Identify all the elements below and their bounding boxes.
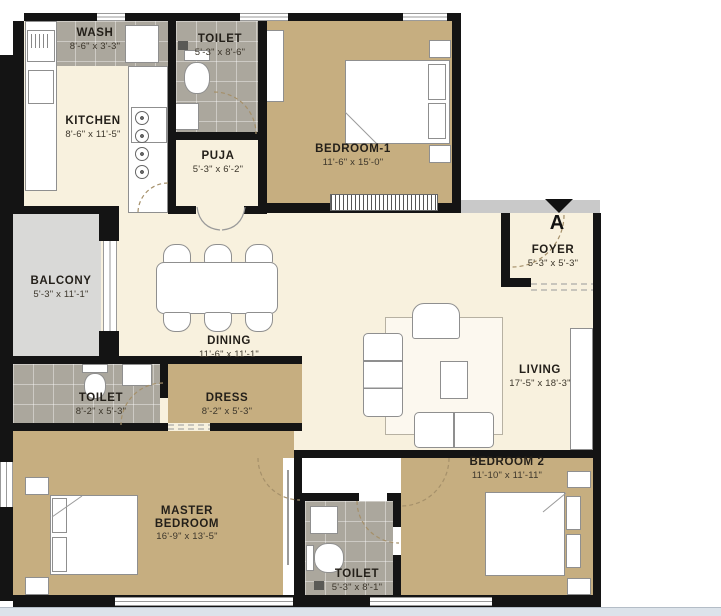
room-name: BALCONY xyxy=(30,275,91,288)
dining-chair xyxy=(163,244,191,264)
room-dims: 5'-3" x 8'-1" xyxy=(332,582,382,593)
bottom-edge-strip xyxy=(0,607,721,616)
room-dims: 11'-10" x 11'-11" xyxy=(469,470,544,481)
floor-plan: A WASH 8'-6" x 3'-3" TOILET 5'-3" x 8'-6… xyxy=(0,0,721,616)
toilet1-sink-icon xyxy=(172,103,199,130)
washing-machine-drum xyxy=(31,34,51,48)
room-label-dining: DINING 11'-6" x 11'-1" xyxy=(199,335,259,360)
room-name: PUJA xyxy=(193,150,243,163)
exhaust-fan-icon xyxy=(314,581,324,590)
burner-icon xyxy=(135,129,149,143)
stove-icon xyxy=(131,107,167,143)
bedroom1-pillow xyxy=(428,64,446,100)
burner-icon xyxy=(135,165,149,179)
room-label-balcony: BALCONY 5'-3" x 11'-1" xyxy=(30,275,91,300)
bedroom1-pillow xyxy=(428,103,446,139)
master-nightstand xyxy=(25,577,49,595)
window xyxy=(115,597,293,606)
room-name: KITCHEN xyxy=(65,115,120,128)
master-nightstand xyxy=(25,477,49,495)
room-label-bedroom1: BEDROOM-1 11'-6" x 15'-0" xyxy=(315,143,391,168)
room-dims: 8'-2" x 5'-3" xyxy=(202,406,252,417)
bedroom1-nightstand xyxy=(429,145,451,163)
room-label-puja: PUJA 5'-3" x 6'-2" xyxy=(193,150,243,175)
bedroom2-pillow xyxy=(566,496,581,530)
room-label-toilet1: TOILET 5'-3" x 8'-6" xyxy=(195,33,245,58)
coffee-table xyxy=(440,361,468,399)
room-name: LIVING xyxy=(509,364,570,377)
room-name: DRESS xyxy=(202,392,252,405)
toilet2-cistern xyxy=(82,364,108,373)
master-pillow xyxy=(52,537,67,572)
toilet1-wc-icon xyxy=(184,62,210,94)
sofa-single xyxy=(412,303,460,339)
room-dims: 8'-6" x 11'-5" xyxy=(65,129,120,140)
room-dims: 8'-2" x 5'-3" xyxy=(76,406,126,417)
room-label-living: LIVING 17'-5" x 18'-3" xyxy=(509,364,570,389)
room-name: BEDROOM-1 xyxy=(315,143,391,156)
bedroom2-pillow xyxy=(566,534,581,568)
entry-marker: A xyxy=(550,212,564,235)
bedroom2-nightstand xyxy=(567,471,591,488)
wall xyxy=(593,450,601,608)
master-pillow xyxy=(52,498,67,533)
exhaust-fan-icon xyxy=(178,41,188,50)
wall xyxy=(393,555,401,597)
room-name: TOILET xyxy=(332,568,382,581)
room-label-dress: DRESS 8'-2" x 5'-3" xyxy=(202,392,252,417)
wash-sink-icon xyxy=(28,70,54,104)
wash-counter-sink xyxy=(125,25,159,63)
room-label-foyer: FOYER 5'-3" x 5'-3" xyxy=(528,244,578,269)
wall xyxy=(99,213,119,241)
wall xyxy=(13,423,168,431)
wall xyxy=(393,501,401,527)
bedroom2-nightstand xyxy=(567,578,591,595)
wall xyxy=(244,206,267,214)
burner-icon xyxy=(135,111,149,125)
room-label-master-bedroom: MASTER BEDROOM 16'-9" x 13'-5" xyxy=(137,505,237,542)
room-name: MASTER BEDROOM xyxy=(137,505,237,530)
window xyxy=(370,597,492,606)
room-name: DINING xyxy=(199,335,259,348)
wall xyxy=(302,450,601,458)
entrance-strip xyxy=(461,200,600,213)
bedroom1-wardrobe xyxy=(266,30,284,102)
room-label-wash: WASH 8'-6" x 3'-3" xyxy=(70,27,120,52)
room-dims: 5'-3" x 6'-2" xyxy=(193,164,243,175)
room-name: BEDROOM 2 xyxy=(469,456,544,469)
room-name: TOILET xyxy=(76,392,126,405)
burner-icon xyxy=(135,147,149,161)
room-label-toilet3: TOILET 5'-3" x 8'-1" xyxy=(332,568,382,593)
dining-chair xyxy=(204,312,232,332)
wall xyxy=(501,213,510,285)
window xyxy=(97,13,125,21)
wall xyxy=(387,493,401,501)
room-name: FOYER xyxy=(528,244,578,257)
lobby-area xyxy=(302,458,401,493)
room-dims: 8'-6" x 3'-3" xyxy=(70,41,120,52)
room-label-kitchen: KITCHEN 8'-6" x 11'-5" xyxy=(65,115,120,140)
wall xyxy=(168,206,196,214)
wall xyxy=(176,132,258,140)
wall xyxy=(297,493,359,501)
wall xyxy=(168,21,176,213)
bedroom1-window-grill xyxy=(330,194,438,211)
balcony-sliding-door xyxy=(103,241,117,331)
living-window-unit xyxy=(570,328,593,450)
toilet3-cistern xyxy=(306,545,314,571)
room-dims: 5'-3" x 5'-3" xyxy=(528,258,578,269)
room-label-bedroom2: BEDROOM 2 11'-10" x 11'-11" xyxy=(469,456,544,481)
wall xyxy=(258,21,267,211)
room-dims: 16'-9" x 13'-5" xyxy=(137,531,237,542)
master-door-leaf xyxy=(287,470,289,565)
wall xyxy=(210,423,302,431)
room-name: TOILET xyxy=(195,33,245,46)
entry-arrow-icon xyxy=(545,199,573,213)
window xyxy=(403,13,447,21)
room-dims: 5'-3" x 8'-6" xyxy=(195,47,245,58)
wall xyxy=(452,13,461,213)
room-dims: 11'-6" x 15'-0" xyxy=(315,157,391,168)
bedroom1-nightstand xyxy=(429,40,451,58)
wall xyxy=(297,493,305,597)
dining-table xyxy=(156,262,278,314)
toilet3-sink-icon xyxy=(310,506,338,534)
wall xyxy=(593,213,601,457)
bedroom2-bed xyxy=(485,492,565,576)
wall xyxy=(13,21,24,206)
dining-chair xyxy=(245,312,273,332)
sofa-three-seater xyxy=(363,333,403,417)
room-dims: 17'-5" x 18'-3" xyxy=(509,378,570,389)
window xyxy=(240,13,288,21)
dining-chair xyxy=(163,312,191,332)
wall xyxy=(160,356,168,398)
window xyxy=(0,462,13,507)
dining-chair xyxy=(245,244,273,264)
wall xyxy=(99,331,119,356)
room-dims: 5'-3" x 11'-1" xyxy=(30,289,91,300)
dining-chair xyxy=(204,244,232,264)
toilet2-sink-icon xyxy=(122,364,152,386)
sofa-two-seater xyxy=(414,412,494,448)
room-name: WASH xyxy=(70,27,120,40)
room-label-toilet2: TOILET 8'-2" x 5'-3" xyxy=(76,392,126,417)
room-dims: 11'-6" x 11'-1" xyxy=(199,349,259,360)
wall xyxy=(0,55,13,601)
wall xyxy=(501,278,531,287)
